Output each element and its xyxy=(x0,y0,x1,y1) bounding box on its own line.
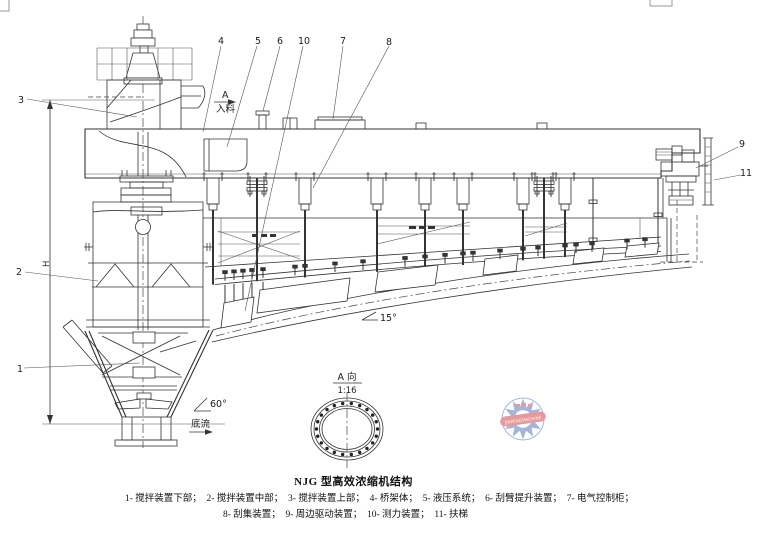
section-view-a: A 向 1:16 xyxy=(311,371,383,468)
agitator-lower xyxy=(98,332,196,409)
engineering-drawing: H 3 2 1 4 5 6 10 7 8 9 11 A 入料 60° xyxy=(0,0,759,540)
part-label-9: 9 xyxy=(739,139,745,150)
tank-right-wall xyxy=(660,178,703,262)
shaft-and-bearing xyxy=(120,132,173,202)
dim-height-text: H xyxy=(42,261,52,267)
girder-bottom-bolts xyxy=(202,172,576,181)
view-title: A 向 xyxy=(337,371,356,383)
hydraulic-system-box xyxy=(204,139,247,171)
page-edge-marks xyxy=(0,0,672,11)
electric-control-cabinet xyxy=(315,117,365,129)
bridge-girder xyxy=(85,123,700,178)
part-label-7: 7 xyxy=(340,36,346,47)
part-label-3: 3 xyxy=(18,95,24,106)
rake-lift-stub xyxy=(256,111,269,129)
part-label-4: 4 xyxy=(218,36,224,47)
part-label-11: 11 xyxy=(740,168,752,179)
part-label-1: 1 xyxy=(17,364,23,375)
feed-housing xyxy=(88,80,181,129)
feed-chute xyxy=(181,86,205,108)
underflow-annotation: 60° 底流 xyxy=(189,398,227,435)
cone-angle-text: 60° xyxy=(210,399,227,410)
agitator-middle-box xyxy=(84,202,212,330)
part-label-5: 5 xyxy=(255,36,261,47)
part-label-8: 8 xyxy=(386,37,392,48)
part-label-10: 10 xyxy=(298,36,310,47)
floor-angle-annotation: 15° xyxy=(362,312,397,324)
part-label-2: 2 xyxy=(16,267,22,278)
feed-section-letter: A xyxy=(222,90,229,101)
scanned-technical-page: H 3 2 1 4 5 6 10 7 8 9 11 A 入料 60° xyxy=(0,0,759,540)
ladder xyxy=(702,138,714,205)
floor-angle-text: 15° xyxy=(380,313,397,324)
part-labels: 3 2 1 4 5 6 10 7 8 9 11 xyxy=(16,36,752,375)
figure-title: NJG 型高效浓缩机结构 xyxy=(0,473,733,489)
peripheral-drive-unit xyxy=(656,146,708,205)
agitator-drive-motor xyxy=(124,24,162,84)
watermark-logo: JINPENGMACHINE xyxy=(500,398,547,440)
part-label-6: 6 xyxy=(277,36,283,47)
underflow-text: 底流 xyxy=(191,418,211,430)
feed-text: 入料 xyxy=(216,103,236,115)
figure-legend-line1: 1- 搅拌装置下部； 2- 搅拌装置中部； 3- 搅拌装置上部； 4- 桥架体；… xyxy=(0,490,759,504)
figure-legend-line2: 8- 刮集装置； 9- 周边驱动装置； 10- 测力装置； 11- 扶梯 xyxy=(0,506,725,520)
feed-annotation: A 入料 xyxy=(214,90,236,115)
